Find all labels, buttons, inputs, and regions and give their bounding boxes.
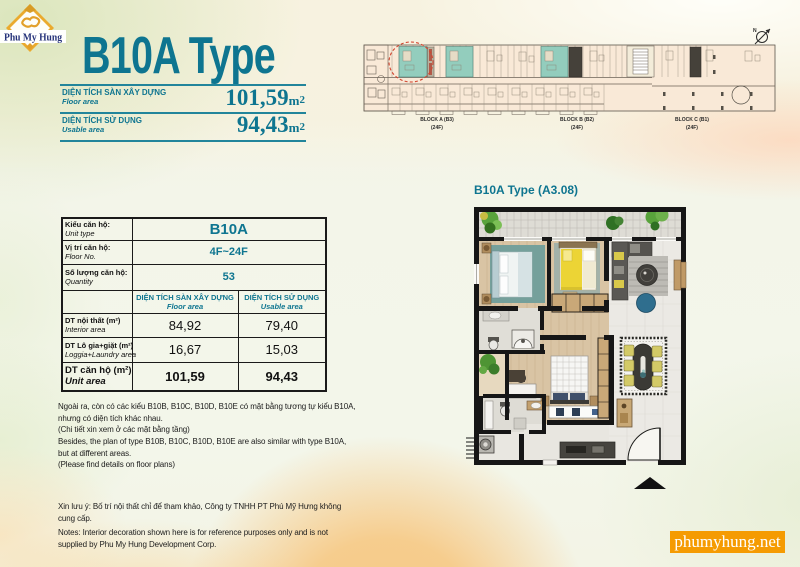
svg-text:(24F): (24F) (431, 125, 443, 131)
svg-text:Phu My Hung: Phu My Hung (4, 33, 62, 44)
svg-text:(24F): (24F) (686, 125, 698, 131)
svg-text:(24F): (24F) (571, 125, 583, 131)
svg-text:BLOCK A (B3): BLOCK A (B3) (420, 117, 454, 123)
svg-text:N: N (753, 28, 757, 34)
svg-text:BLOCK B (B2): BLOCK B (B2) (560, 117, 594, 123)
svg-text:BLOCK C (B1): BLOCK C (B1) (675, 117, 709, 123)
